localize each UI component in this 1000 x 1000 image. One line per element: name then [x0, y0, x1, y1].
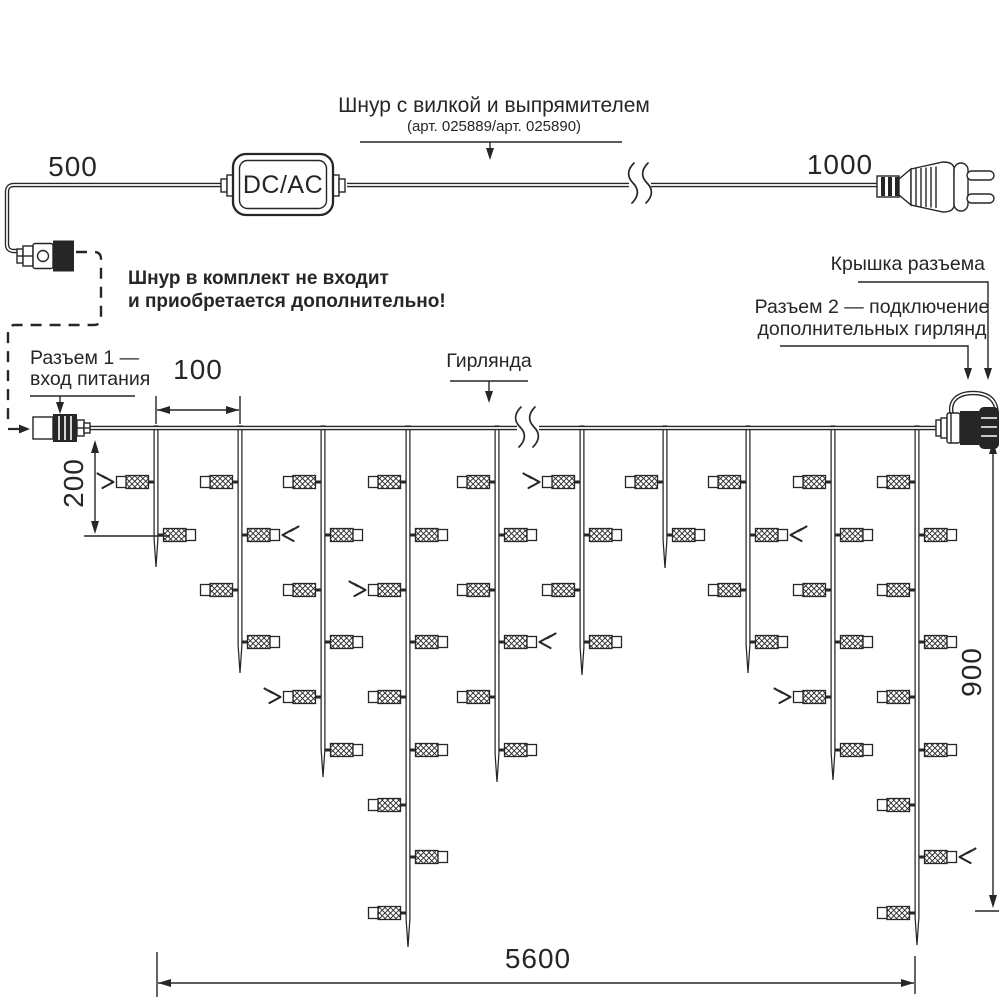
- garland-lamps: [98, 474, 976, 920]
- lamp-tip: [626, 477, 636, 488]
- lamp-body-icon: [803, 691, 826, 704]
- lamp-tip: [947, 852, 957, 863]
- lamp-tip: [438, 530, 448, 541]
- lamp-tip: [527, 745, 537, 756]
- lamp-tip: [863, 637, 873, 648]
- lamp-tip: [458, 692, 468, 703]
- lamp-tip: [878, 908, 888, 919]
- flash-arrow-tail: [968, 849, 976, 854]
- cap-label: Крышка разъема: [788, 253, 985, 276]
- lamp-tip: [369, 477, 379, 488]
- flash-arrow-tail: [799, 527, 807, 532]
- lamp-tip: [458, 477, 468, 488]
- flash-arrow-tail: [350, 582, 358, 587]
- lamp-body-icon: [505, 636, 528, 649]
- flash-arrow-tail: [775, 689, 783, 694]
- lamp-tip: [527, 530, 537, 541]
- lamp-tip: [794, 585, 804, 596]
- lamp-tip: [284, 585, 294, 596]
- dim-1000-label: 1000: [795, 149, 885, 181]
- dim-500-label: 500: [30, 151, 116, 183]
- lamp-body-icon: [378, 799, 401, 812]
- icicle-drop: [406, 426, 410, 947]
- connector2-label-line2: дополнительных гирлянд: [742, 318, 1000, 341]
- lamp-tip: [438, 745, 448, 756]
- lamp-tip: [612, 530, 622, 541]
- lamp-tip: [543, 477, 553, 488]
- lamp-tip: [947, 530, 957, 541]
- icicle-drop: [321, 426, 325, 777]
- lamp-body-icon: [126, 476, 149, 489]
- lamp-body-icon: [552, 476, 575, 489]
- lamp-body-icon: [467, 691, 490, 704]
- flash-arrow-tail: [98, 474, 106, 479]
- lamp-tip: [947, 745, 957, 756]
- dim-100-label: 100: [156, 354, 240, 386]
- lamp-tip: [794, 692, 804, 703]
- extension-cord-dashed-line: [8, 252, 101, 434]
- lamp-tip: [186, 530, 196, 541]
- lamp-body-icon: [293, 691, 316, 704]
- lamp-tip: [201, 585, 211, 596]
- diagram-canvas: 500 1000 DC/AC Шнур с вилкой и выпрямите…: [0, 0, 1000, 1000]
- note-line2: и приобретается дополнительно!: [128, 291, 446, 313]
- lamp-body-icon: [887, 584, 910, 597]
- dim-900-label: 900: [956, 617, 984, 727]
- lamp-body-icon: [635, 476, 658, 489]
- lamp-tip: [438, 637, 448, 648]
- lamp-body-icon: [590, 636, 613, 649]
- icicle-drop: [831, 426, 835, 780]
- mains-plug-icon: [877, 162, 994, 212]
- lamp-body-icon: [210, 476, 233, 489]
- lamp-body-icon: [925, 529, 948, 542]
- garland-label: Гирлянда: [409, 350, 569, 373]
- lamp-tip: [863, 530, 873, 541]
- lamp-body-icon: [416, 529, 439, 542]
- flash-arrow-tail: [265, 689, 273, 694]
- lamp-tip: [878, 800, 888, 811]
- lamp-body-icon: [887, 799, 910, 812]
- lamp-body-icon: [293, 584, 316, 597]
- cord-sublabel: (арт. 025889/арт. 025890): [294, 118, 694, 135]
- lamp-tip: [284, 477, 294, 488]
- icicle-drop: [746, 426, 750, 673]
- lamp-body-icon: [293, 476, 316, 489]
- dc-ac-label: DC/AC: [233, 171, 333, 200]
- lamp-tip: [878, 585, 888, 596]
- lamp-body-icon: [925, 744, 948, 757]
- lamp-body-icon: [331, 529, 354, 542]
- wire-break-icon: [516, 407, 539, 447]
- icicle-drop: [238, 426, 242, 673]
- lamp-body-icon: [505, 744, 528, 757]
- lamp-tip: [863, 745, 873, 756]
- cable-break-icon: [629, 163, 652, 203]
- connector2-label-leader: [780, 346, 972, 380]
- lamp-body-icon: [505, 529, 528, 542]
- lamp-body-icon: [331, 744, 354, 757]
- lamp-body-icon: [925, 851, 948, 864]
- lamp-body-icon: [416, 744, 439, 757]
- lamp-body-icon: [416, 636, 439, 649]
- lamp-body-icon: [552, 584, 575, 597]
- lamp-body-icon: [925, 636, 948, 649]
- dim-5600-label: 5600: [468, 943, 608, 975]
- power-output-connector-icon: [17, 241, 74, 272]
- lamp-body-icon: [841, 636, 864, 649]
- lamp-body-icon: [841, 529, 864, 542]
- lamp-tip: [778, 637, 788, 648]
- lamp-tip: [709, 477, 719, 488]
- lamp-body-icon: [248, 636, 271, 649]
- spare-connector-with-cap-icon: [936, 393, 999, 449]
- lamp-body-icon: [590, 529, 613, 542]
- lamp-body-icon: [718, 584, 741, 597]
- flash-arrow-tail: [524, 474, 532, 479]
- lamp-tip: [117, 477, 127, 488]
- lamp-body-icon: [331, 636, 354, 649]
- lamp-tip: [270, 530, 280, 541]
- connector1-label-line1: Разъем 1 —: [30, 347, 139, 370]
- lamp-tip: [369, 800, 379, 811]
- icicle-drops: [154, 426, 919, 947]
- cord-label: Шнур с вилкой и выпрямителем: [294, 94, 694, 118]
- lamp-tip: [353, 530, 363, 541]
- lamp-tip: [458, 585, 468, 596]
- lamp-body-icon: [841, 744, 864, 757]
- garland-wire: [90, 407, 936, 447]
- lamp-body-icon: [887, 907, 910, 920]
- connector1-label-leader: [30, 396, 135, 414]
- lamp-tip: [369, 692, 379, 703]
- lamp-body-icon: [467, 476, 490, 489]
- lamp-tip: [284, 692, 294, 703]
- lamp-tip: [353, 637, 363, 648]
- lamp-body-icon: [718, 476, 741, 489]
- lamp-body-icon: [803, 476, 826, 489]
- lamp-body-icon: [756, 529, 779, 542]
- icicle-drop: [154, 426, 158, 567]
- icicle-drop: [495, 426, 499, 782]
- lamp-body-icon: [467, 584, 490, 597]
- lamp-tip: [878, 477, 888, 488]
- lamp-body-icon: [756, 636, 779, 649]
- lamp-body-icon: [416, 851, 439, 864]
- lamp-body-icon: [210, 584, 233, 597]
- lamp-tip: [709, 585, 719, 596]
- lamp-tip: [527, 637, 537, 648]
- icicle-drop: [915, 426, 919, 945]
- icicle-drop: [663, 426, 667, 568]
- lamp-body-icon: [673, 529, 696, 542]
- lamp-tip: [353, 745, 363, 756]
- garland-label-leader: [450, 381, 528, 403]
- lamp-body-icon: [887, 476, 910, 489]
- lamp-tip: [878, 692, 888, 703]
- dimension-100: [156, 396, 240, 424]
- connector1-label-line2: вход питания: [30, 368, 150, 391]
- flash-arrow-tail: [548, 634, 556, 639]
- cord-label-leader: [360, 142, 622, 160]
- dim-200-label: 200: [58, 428, 86, 538]
- lamp-tip: [270, 637, 280, 648]
- lamp-body-icon: [378, 691, 401, 704]
- note-line1: Шнур в комплект не входит: [128, 268, 389, 290]
- lamp-tip: [201, 477, 211, 488]
- lamp-body-icon: [378, 907, 401, 920]
- lamp-body-icon: [164, 529, 187, 542]
- lamp-tip: [438, 852, 448, 863]
- lamp-body-icon: [378, 584, 401, 597]
- lamp-tip: [369, 585, 379, 596]
- lamp-body-icon: [887, 691, 910, 704]
- lamp-body-icon: [378, 476, 401, 489]
- lamp-body-icon: [248, 529, 271, 542]
- flash-arrow-tail: [291, 527, 299, 532]
- lamp-tip: [543, 585, 553, 596]
- lamp-tip: [695, 530, 705, 541]
- icicle-drop: [580, 426, 584, 675]
- lamp-tip: [794, 477, 804, 488]
- lamp-tip: [612, 637, 622, 648]
- connector2-label-line1: Разъем 2 — подключение: [742, 296, 1000, 319]
- lamp-tip: [369, 908, 379, 919]
- lamp-tip: [778, 530, 788, 541]
- lamp-body-icon: [803, 584, 826, 597]
